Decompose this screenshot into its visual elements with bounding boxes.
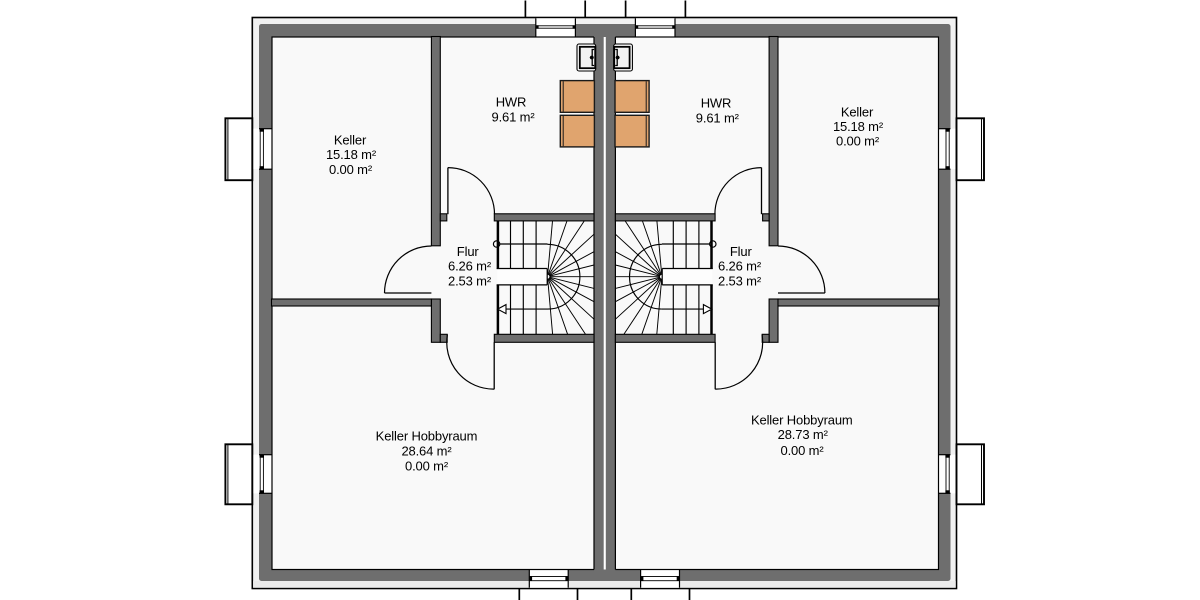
svg-text:15.18 m²: 15.18 m² <box>833 119 884 134</box>
svg-text:28.64 m²: 28.64 m² <box>401 443 452 458</box>
svg-text:HWR: HWR <box>701 96 732 111</box>
svg-text:HWR: HWR <box>496 94 527 109</box>
svg-text:2.53 m²: 2.53 m² <box>718 273 762 288</box>
svg-text:6.26 m²: 6.26 m² <box>718 258 762 273</box>
svg-text:Keller Hobbyraum: Keller Hobbyraum <box>376 429 478 444</box>
svg-text:9.61 m²: 9.61 m² <box>696 111 740 126</box>
svg-text:0.00 m²: 0.00 m² <box>780 443 824 458</box>
svg-text:6.26 m²: 6.26 m² <box>448 258 492 273</box>
svg-text:Keller: Keller <box>334 133 367 148</box>
svg-text:2.53 m²: 2.53 m² <box>448 273 492 288</box>
svg-text:0.00 m²: 0.00 m² <box>405 458 449 473</box>
svg-text:9.61 m²: 9.61 m² <box>491 109 535 124</box>
svg-text:15.18 m²: 15.18 m² <box>326 147 377 162</box>
svg-text:Flur: Flur <box>730 244 753 259</box>
svg-text:Keller Hobbyraum: Keller Hobbyraum <box>751 413 853 428</box>
svg-text:Flur: Flur <box>457 244 480 259</box>
svg-text:0.00 m²: 0.00 m² <box>836 134 880 149</box>
svg-text:Keller: Keller <box>841 104 874 119</box>
svg-text:0.00 m²: 0.00 m² <box>329 162 373 177</box>
svg-text:28.73 m²: 28.73 m² <box>778 427 829 442</box>
